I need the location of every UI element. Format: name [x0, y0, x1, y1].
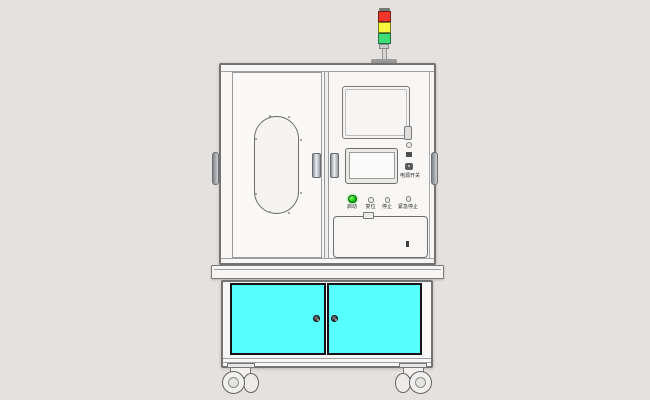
reset-button	[368, 197, 374, 203]
worktable	[211, 265, 444, 279]
right-panel-handle	[330, 153, 339, 178]
screw-dot	[288, 212, 290, 214]
start-button-label: 启动	[342, 204, 362, 210]
emergency-stop-label: 紧急停止	[395, 204, 421, 210]
tower-light-yellow-icon	[378, 22, 391, 33]
signal-tower	[368, 6, 400, 64]
caster-swivel-ring	[243, 373, 259, 393]
hmi-screen	[349, 152, 395, 179]
caster-wheel	[409, 371, 432, 394]
stop-button	[385, 197, 391, 203]
caster-left	[221, 363, 261, 397]
screw-dot	[255, 193, 257, 195]
start-button	[348, 195, 357, 204]
viewing-window-inner	[345, 89, 407, 136]
key-switch-icon	[405, 163, 413, 170]
machine-render: 电源开关 启动 复位 停止 紧急停止	[0, 0, 650, 400]
tower-light-green-icon	[378, 33, 391, 44]
cabinet-door-right	[327, 283, 422, 355]
screw-dot	[300, 192, 302, 194]
screw-dot	[300, 139, 302, 141]
base-rail-line	[223, 358, 431, 359]
oval-window	[254, 116, 299, 214]
window-handle	[404, 126, 412, 140]
caster-right	[393, 363, 433, 397]
bottom-beam-line	[221, 258, 434, 259]
emergency-stop-button	[406, 196, 412, 202]
left-door-handle	[312, 153, 321, 178]
viewing-window	[342, 86, 410, 139]
cabinet-door-left	[230, 283, 326, 355]
screw-dot	[269, 115, 271, 117]
center-divider	[324, 72, 329, 258]
selector-switch-icon	[406, 152, 412, 157]
caster-wheel	[222, 371, 245, 394]
door-knob-left	[313, 315, 320, 322]
screw-dot	[269, 211, 271, 213]
screw-dot	[255, 138, 257, 140]
right-post-line	[429, 72, 430, 258]
access-panel	[333, 216, 428, 258]
door-knob-right	[331, 315, 338, 322]
tower-light-red-icon	[378, 11, 391, 22]
side-handle-right	[431, 152, 438, 185]
power-switch-label: 电源开关	[396, 173, 424, 179]
side-handle-left	[212, 152, 219, 185]
power-indicator	[406, 142, 412, 148]
panel-lock	[406, 241, 409, 247]
stop-button-label: 停止	[377, 204, 397, 210]
access-panel-latch	[363, 212, 374, 219]
screw-dot	[288, 116, 290, 118]
